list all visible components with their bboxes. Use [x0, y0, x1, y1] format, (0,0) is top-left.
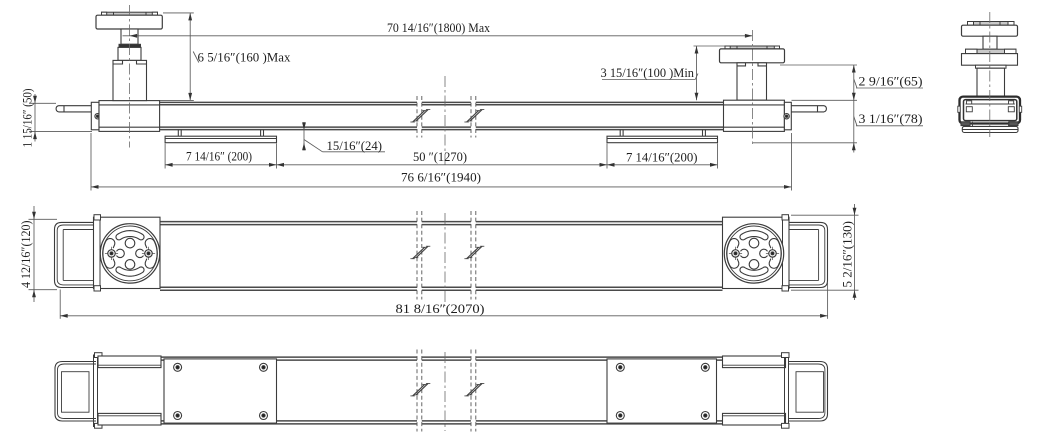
svg-text:15/16″(24): 15/16″(24): [327, 138, 383, 153]
svg-text:6 5/16″(160 )Max: 6 5/16″(160 )Max: [198, 49, 291, 64]
svg-text:2 9/16″(65): 2 9/16″(65): [859, 73, 923, 88]
svg-text:7 14/16″ (200): 7 14/16″ (200): [186, 149, 252, 164]
svg-text:81 8/16″(2070): 81 8/16″(2070): [396, 301, 485, 316]
svg-text:7 14/16″(200): 7 14/16″(200): [626, 150, 698, 165]
svg-text:3 15/16″(100 )Min: 3 15/16″(100 )Min: [601, 65, 695, 80]
svg-text:50 ″(1270): 50 ″(1270): [413, 149, 467, 164]
svg-text:70 14/16″(1800) Max: 70 14/16″(1800) Max: [387, 20, 490, 35]
svg-text:3 1/16″(78): 3 1/16″(78): [859, 111, 923, 126]
svg-text:5 2/16″(130): 5 2/16″(130): [840, 221, 855, 288]
svg-text:1 15/16″ (50): 1 15/16″ (50): [20, 89, 35, 148]
svg-text:76 6/16″(1940): 76 6/16″(1940): [401, 170, 481, 185]
svg-text:4 12/16″(120): 4 12/16″(120): [18, 221, 33, 289]
